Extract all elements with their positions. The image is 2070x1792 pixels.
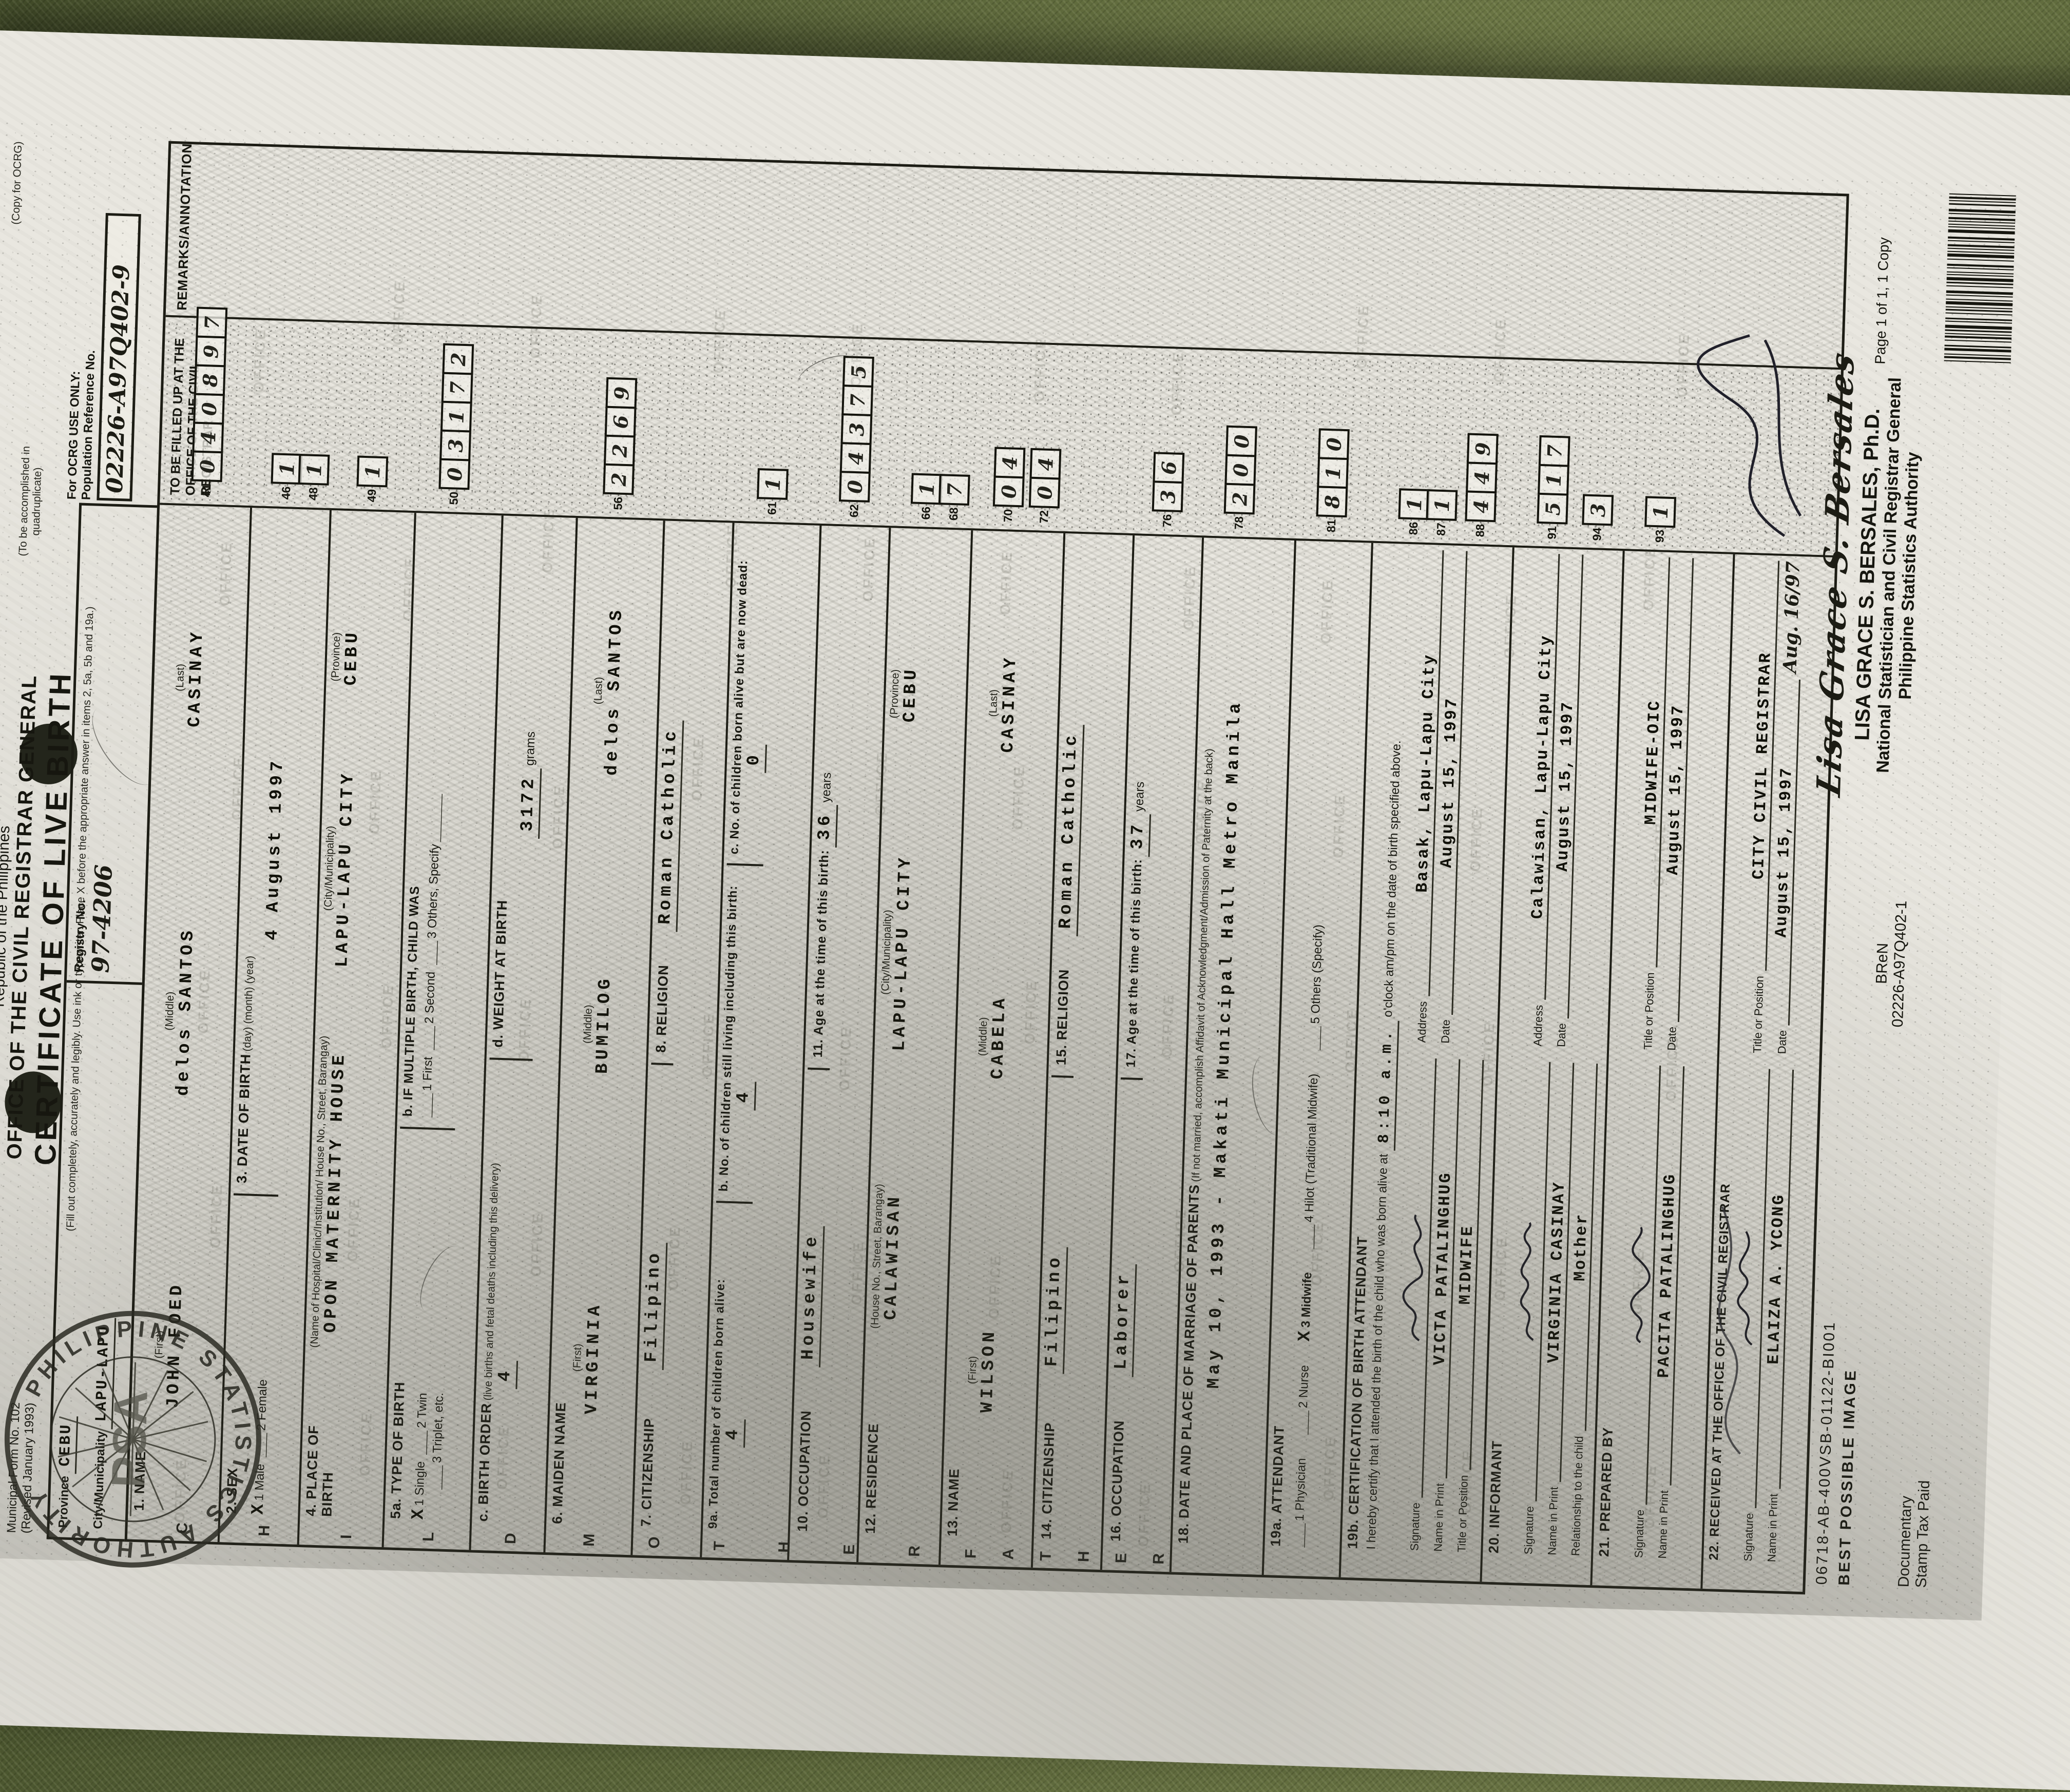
attendant-hilot: 4 Hilot (Traditional Midwife) xyxy=(1302,1073,1320,1223)
father-age-value: 37 xyxy=(1128,814,1152,857)
attendant-midwife: 3 Midwife xyxy=(1299,1272,1314,1328)
ocrg-box-88: 88449 xyxy=(1464,433,1498,537)
ocrg-box-cell: 1 xyxy=(1398,489,1430,521)
certification-time: 8:10 a.m. xyxy=(1375,1020,1400,1151)
ocrg-box-number: 56 xyxy=(611,497,625,510)
barcode-bar xyxy=(1949,213,2016,216)
ocrg-box-digit: 7 xyxy=(1543,444,1566,458)
ocrg-box-91: 91517 xyxy=(1536,435,1570,539)
ocrg-box-cell: 1 xyxy=(298,454,330,486)
ocrg-box-cell: 7 xyxy=(841,385,873,417)
ocrg-box-cell: 0 xyxy=(438,458,470,490)
mother-religion-value: Roman Catholic xyxy=(655,720,684,932)
ocrg-box-digit: 0 xyxy=(997,485,1021,499)
barcode-bar xyxy=(1945,324,2012,330)
informant-relationship-label: Relationship to the child xyxy=(1569,1436,1586,1556)
ocrg-box-number: 93 xyxy=(1653,529,1667,543)
ocrg-box-cell: 8 xyxy=(1316,486,1348,518)
mother-age-label: 11. Age at the time of this birth: xyxy=(811,850,832,1058)
section-letter-mother: E xyxy=(841,1544,859,1555)
ocrg-box-49: 491 xyxy=(356,456,388,503)
documentary-line-2: Stamp Tax Paid xyxy=(1913,1480,1934,1588)
barcode-bar xyxy=(1948,240,2015,243)
ocrg-box-48: 481 xyxy=(298,454,330,500)
ocrg-box-cell: 3 xyxy=(439,430,471,461)
ocrg-box-digit: 3 xyxy=(444,438,467,453)
ocrg-box-cell: 2 xyxy=(604,435,636,467)
section-letter-child: D xyxy=(502,1533,520,1545)
ocrg-box-cell: 7 xyxy=(938,474,970,506)
documentary-stamp-note: Documentary Stamp Tax Paid xyxy=(1895,1479,1934,1588)
ocrg-box-digit: 1 xyxy=(1430,498,1453,512)
ocrg-box-cell: 7 xyxy=(1539,435,1570,467)
ocrg-box-66: 661 xyxy=(910,473,943,520)
section-letter-father: R xyxy=(1151,1553,1168,1565)
weight-label: d. WEIGHT AT BIRTH xyxy=(490,899,510,1048)
ocrg-box-cell: 0 xyxy=(1225,426,1257,457)
section-letter-father: H xyxy=(1075,1551,1093,1563)
barcode-bar xyxy=(1947,277,2014,282)
ocrg-box-digit: 7 xyxy=(846,394,869,408)
ocrg-box-digit: 8 xyxy=(1320,495,1344,509)
ocrg-box-cell: 1 xyxy=(911,473,943,505)
section-letter-father: F xyxy=(962,1549,980,1558)
father-religion-value: Roman Catholic xyxy=(1056,724,1085,936)
ocrg-box-digit: 0 xyxy=(197,402,221,416)
barcode-bar xyxy=(1949,200,2016,203)
tob-second: 2 Second xyxy=(423,971,438,1024)
informant-signature-label: Signature xyxy=(1522,1506,1537,1555)
marriage-value: May 10, 1993 - Makati Municipal Hall Met… xyxy=(1200,544,1251,1545)
ocrg-box-digit: 3 xyxy=(845,422,868,437)
certification-text-1: I hereby certify that I attended the bir… xyxy=(1364,1153,1390,1550)
ocrg-box-cell: 4 xyxy=(1466,462,1498,494)
ocrg-box-cell: 1 xyxy=(1426,489,1458,521)
photocopied-certificate-paper: Municipal Form No. 102 (Revised January … xyxy=(0,30,2070,1792)
father-name-label: 13. NAME xyxy=(945,1468,962,1536)
barcode-bar xyxy=(1947,254,2014,259)
ocrg-box-number: 72 xyxy=(1037,510,1051,524)
ocrg-box-76: 7636 xyxy=(1152,452,1185,528)
mother-occupation-value: Housewife xyxy=(798,1226,825,1367)
ocrg-box-digit: 0 xyxy=(443,467,466,481)
barcode xyxy=(1944,192,2016,363)
ocrg-box-number: 48 xyxy=(306,487,320,500)
ocrg-box-number: 81 xyxy=(1324,519,1338,532)
ocrg-box-cell: 0 xyxy=(1029,477,1061,509)
attendant-signature xyxy=(1398,1210,1430,1345)
seal-center-text: PSA xyxy=(102,1390,158,1488)
ocrg-box-digit: 1 xyxy=(1402,497,1426,512)
ocrg-box-digit: 4 xyxy=(998,456,1022,470)
birth-order-label: c. BIRTH ORDER xyxy=(475,1402,494,1521)
father-age-label: 17. Age at the time of this birth: xyxy=(1124,858,1145,1067)
section-letter-father: E xyxy=(1113,1553,1130,1564)
mother-religion-label: 8. RELIGION xyxy=(653,965,671,1053)
children-born-alive-label: 9a. Total number of children born alive: xyxy=(706,1279,727,1529)
prepared-name-label: Name in Print xyxy=(1656,1490,1671,1559)
prepared-title-label: Title or Position xyxy=(1641,972,1657,1050)
received-script-date: Aug. 16/97 xyxy=(1779,561,1804,673)
dob-value: 4 August 1997 xyxy=(255,514,296,1185)
informant-label: 20. INFORMANT xyxy=(1486,1440,1505,1554)
barcode-bar xyxy=(1946,282,2013,285)
cert-title-label: Title or Position xyxy=(1455,1475,1471,1553)
barcode-bar xyxy=(1948,229,2015,235)
section-letter-child: I xyxy=(338,1534,355,1539)
ocrg-box-93: 931 xyxy=(1644,496,1676,543)
ocrg-box-digit: 3 xyxy=(1586,503,1609,517)
ocrg-box-68: 687 xyxy=(938,474,970,521)
registry-label: Registry No. xyxy=(72,899,88,972)
ocrg-box-cell: 1 xyxy=(1317,457,1349,489)
children-living-value: 4 xyxy=(734,1081,757,1110)
prepared-signature-label: Signature xyxy=(1632,1509,1647,1558)
ocrg-box-digit: 4 xyxy=(196,431,220,445)
residence-label: 12. RESIDENCE xyxy=(862,1411,883,1534)
barcode-bar xyxy=(1949,203,2016,207)
ocrg-box-digit: 4 xyxy=(1034,457,1058,471)
ocrg-box-41: 41040897 xyxy=(191,307,228,497)
tob-first: 1 First xyxy=(420,1056,435,1091)
children-dead-value: 0 xyxy=(744,744,767,773)
section-letter-mother: H xyxy=(776,1541,794,1553)
ocrg-box-78: 78200 xyxy=(1223,426,1257,530)
ocrg-box-digit: 2 xyxy=(608,444,631,458)
ocrg-box-cell: 0 xyxy=(839,471,871,503)
ocrg-box-number: 76 xyxy=(1160,514,1174,527)
attendant-physician: 1 Physician xyxy=(1293,1458,1309,1521)
ocrg-box-cell: 2 xyxy=(442,343,474,375)
registrar-general-block: Lisa Grace S. Bersales LISA GRACE S. BER… xyxy=(1809,342,1926,807)
barcode-bar xyxy=(1948,226,2015,229)
prepared-signature xyxy=(1625,1223,1655,1346)
ocrg-box-cell: 9 xyxy=(605,377,637,409)
ocrg-box-cell: 1 xyxy=(440,401,472,433)
received-name-label: Name in Print xyxy=(1765,1494,1780,1563)
ocrg-box-digit: 2 xyxy=(607,472,630,487)
ocrg-box-cell: 4 xyxy=(840,442,872,474)
ocrg-box-cell: 1 xyxy=(757,468,789,500)
ocrg-box-number: 94 xyxy=(1590,527,1604,541)
ocrg-box-cell: 9 xyxy=(195,336,227,368)
tob-mark: X xyxy=(409,1508,429,1520)
ocrg-box-digit: 6 xyxy=(609,415,632,429)
ocrg-box-number: 78 xyxy=(1232,516,1246,530)
ocrg-box-cell: 2 xyxy=(603,464,635,495)
father-citizenship-label: 14. CITIZENSHIP xyxy=(1039,1422,1058,1539)
barcode-bar xyxy=(1947,259,2014,262)
bren-number: 02226-A97Q402-1 xyxy=(1889,900,1911,1028)
dob-sublabel: (day) (month) (year) xyxy=(241,955,256,1051)
mother-age-value: 36 xyxy=(815,804,838,847)
section-letter-mother: O xyxy=(646,1536,664,1549)
attendant-others: 5 Others (Specify) xyxy=(1308,924,1325,1024)
informant-address-label: Address xyxy=(1531,1005,1546,1046)
ocrg-box-digit: 1 xyxy=(275,462,299,476)
father-citizenship-value: Filipino xyxy=(1042,1247,1068,1374)
ocrg-box-number: 66 xyxy=(918,506,933,519)
barcode-bar xyxy=(1949,194,2016,197)
quadruplicate-note: (To be accomplished in quadruplicate) xyxy=(16,434,45,568)
ocrg-box-digit: 2 xyxy=(1228,492,1252,506)
ocrg-box-cell: 1 xyxy=(1644,496,1676,528)
received-date-label: Date xyxy=(1775,1030,1789,1054)
ocrg-box-digit: 0 xyxy=(1033,486,1057,500)
informant-date-label: Date xyxy=(1555,1023,1568,1047)
ocrg-box-number: 86 xyxy=(1406,522,1421,535)
barcode-bar xyxy=(1948,221,2015,224)
weight-value: 3172 xyxy=(517,768,542,839)
psa-seal: PHILIPPINE STATISTICS AUTHORITY PSA xyxy=(0,1296,276,1582)
barcode-bar xyxy=(1946,309,2012,313)
ocrg-box-cell: 4 xyxy=(192,422,224,454)
ocrg-box-digit: 0 xyxy=(843,479,867,494)
ocrg-box-cell: 0 xyxy=(193,393,225,425)
ocrg-box-cell: 3 xyxy=(1152,481,1184,513)
ocrg-box-cell: 0 xyxy=(993,476,1025,508)
ocrg-box-digit: 9 xyxy=(609,386,633,400)
ocrg-box-digit: 9 xyxy=(1471,442,1494,456)
ocrg-box-cell: 0 xyxy=(1224,454,1256,486)
ocrg-box-digit: 0 xyxy=(196,459,219,474)
pob-label: 4. PLACE OF BIRTH xyxy=(303,1393,339,1517)
ocrg-box-cell: 5 xyxy=(1537,493,1568,525)
cert-signature-label: Signature xyxy=(1408,1502,1423,1551)
father-occupation-label: 16. OCCUPATION xyxy=(1108,1420,1127,1541)
population-reference-value: 02226-A97Q402-9 xyxy=(102,264,135,493)
ocrg-box-cell: 1 xyxy=(356,456,388,488)
father-age-years: years xyxy=(1132,781,1147,812)
ocrg-box-cell: 0 xyxy=(1318,429,1350,460)
father-religion-label: 15. RELIGION xyxy=(1053,969,1072,1065)
population-reference-frame: 02226-A97Q402-9 xyxy=(97,213,141,502)
ocrg-box-digit: 5 xyxy=(847,365,870,379)
ocrg-box-61: 611 xyxy=(756,468,789,515)
ocrg-box-number: 88 xyxy=(1473,524,1487,537)
ocrg-box-digit: 9 xyxy=(199,344,223,359)
ocrg-box-digit: 2 xyxy=(446,352,470,367)
barcode-bar xyxy=(1946,301,2012,306)
ocrg-box-digit: 4 xyxy=(1469,499,1492,514)
form-table: 1. NAME (First) JOHN FOED (Middle) delos… xyxy=(125,141,1849,1595)
prepared-date-label: Date xyxy=(1665,1027,1679,1051)
bren-block: BReN 02226-A97Q402-1 xyxy=(1872,900,1911,1028)
form-fields-zone: 1. NAME (First) JOHN FOED (Middle) delos… xyxy=(127,503,1835,1592)
barcode-bar xyxy=(1944,356,2011,360)
ocrg-box-digit: 8 xyxy=(198,373,222,388)
ocrg-box-digit: 1 xyxy=(1321,466,1345,480)
barcode-bar xyxy=(1944,348,2011,353)
tob-single: 1 Single xyxy=(412,1461,428,1506)
serial-number: 06718-AB-400VSB-01122-BI001 xyxy=(1813,1321,1839,1585)
tob-others: 3 Others, Specify xyxy=(425,844,442,939)
section-letter-mother: M xyxy=(581,1533,599,1547)
ocrg-box-digit: 1 xyxy=(1649,505,1672,519)
ocrg-box-cell: 3 xyxy=(1582,494,1614,526)
ocrg-box-94: 943 xyxy=(1581,494,1614,541)
ocrg-box-cell: 4 xyxy=(994,447,1026,479)
ocrg-use-only-box: For OCRG USE ONLY: Population Reference … xyxy=(65,212,161,502)
barcode-bar xyxy=(1946,294,2013,297)
best-possible-image-stamp: BEST POSSIBLE IMAGE xyxy=(1836,1321,1862,1586)
registry-no-field: Registry No. 97-4206 xyxy=(67,665,152,985)
handwritten-flourish xyxy=(1681,327,1822,547)
ocrg-box-digit: 1 xyxy=(445,410,468,424)
handwritten-scrawl xyxy=(1694,1201,1774,1460)
ocrg-box-digit: 4 xyxy=(844,451,868,466)
ocrg-box-cell: 5 xyxy=(842,356,874,388)
ocrg-box-digit: 5 xyxy=(1541,502,1564,516)
cert-name-label: Name in Print xyxy=(1431,1483,1447,1552)
tob-label: 5a. TYPE OF BIRTH xyxy=(388,1381,407,1519)
ocrg-box-cell: 1 xyxy=(1538,464,1569,496)
ocrg-box-digit: 1 xyxy=(1542,473,1565,487)
ocrg-box-cell: 2 xyxy=(1224,483,1256,515)
serial-line: 06718-AB-400VSB-01122-BI001 BEST POSSIBL… xyxy=(1813,1321,1862,1586)
ocrg-box-86: 861 xyxy=(1397,489,1430,535)
section-letter-child: L xyxy=(420,1532,438,1541)
ocrg-box-cell: 6 xyxy=(1153,452,1184,484)
barcode-bar xyxy=(1945,336,2011,340)
barcode-bar xyxy=(1947,248,2014,251)
ocrg-box-digit: 1 xyxy=(915,482,938,496)
barcode-bar xyxy=(1946,285,2013,288)
ocrg-box-87: 871 xyxy=(1425,489,1458,536)
dob-label: 3. DATE OF BIRTH xyxy=(234,1053,254,1183)
barcode-bar xyxy=(1944,360,2011,363)
barcode-bar xyxy=(1945,329,2011,333)
ocrg-box-digit: 0 xyxy=(1230,434,1253,449)
tob-b-label: b. IF MULTIPLE BIRTH, CHILD WAS xyxy=(400,885,422,1117)
ocrg-box-cell: 6 xyxy=(605,406,637,438)
ocrg-box-number: 68 xyxy=(946,507,961,521)
ocrg-box-digit: 1 xyxy=(761,477,784,491)
attendant-nurse: 2 Nurse xyxy=(1296,1365,1312,1409)
ocrg-box-number: 62 xyxy=(847,504,861,517)
ocrg-box-digit: 7 xyxy=(943,483,966,497)
cert-address-label: Address xyxy=(1415,1001,1430,1043)
ocrg-box-cell: 4 xyxy=(1030,448,1062,480)
ocrg-box-number: 91 xyxy=(1545,526,1559,539)
received-signature-label: Signature xyxy=(1741,1513,1756,1562)
ocrg-box-digit: 1 xyxy=(360,465,384,479)
tob-triplet: 3 Triplet, etc. xyxy=(430,1392,446,1463)
mother-occupation-label: 10. OCCUPATION xyxy=(795,1410,814,1532)
barcode-bar xyxy=(1947,267,2014,270)
ocrg-box-70: 7004 xyxy=(992,447,1026,523)
maiden-name-label: 6. MAIDEN NAME xyxy=(549,1402,568,1524)
section-letter-father: A xyxy=(1000,1548,1018,1560)
ocrg-box-cell: 7 xyxy=(442,372,473,404)
ocrg-box-digit: 4 xyxy=(1470,471,1493,485)
mother-citizenship-value: Filipino xyxy=(642,1242,668,1370)
barcode-bar xyxy=(1945,320,2012,323)
certification-text-2: o'clock am/pm on the date of birth speci… xyxy=(1381,740,1404,1017)
birth-certificate-document: Municipal Form No. 102 (Revised January … xyxy=(0,120,2027,1621)
received-title-label: Title or Position xyxy=(1751,976,1767,1054)
ocrg-box-digit: 7 xyxy=(200,316,223,330)
ocrg-box-81: 81810 xyxy=(1316,429,1350,533)
barcode-bar xyxy=(1947,274,2014,277)
ocrg-box-cell: 3 xyxy=(840,414,872,446)
grams-label: grams xyxy=(523,731,538,766)
attendant-label: 19a. ATTENDANT xyxy=(1268,1425,1287,1547)
ocrg-box-cell: 9 xyxy=(1467,433,1499,465)
birth-order-value: 4 xyxy=(495,1360,518,1389)
registry-value: 97-4206 xyxy=(86,864,118,973)
ocrg-box-number: 87 xyxy=(1434,523,1448,536)
ocrg-box-number: 50 xyxy=(447,491,461,505)
ocrg-box-digit: 3 xyxy=(1156,490,1180,504)
ocrg-box-number: 49 xyxy=(365,489,379,502)
barcode-bar xyxy=(1945,340,2011,343)
ocrg-box-62: 6204375 xyxy=(838,356,874,518)
ocrg-box-number: 70 xyxy=(1001,509,1015,522)
ocrg-box-cell: 0 xyxy=(191,451,223,483)
barcode-bar xyxy=(1946,313,2012,316)
informant-name-label: Name in Print xyxy=(1545,1487,1561,1555)
prepared-label: 21. PREPARED BY xyxy=(1596,1427,1616,1557)
children-born-alive-value: 4 xyxy=(723,1418,746,1448)
section-letter-mother: T xyxy=(711,1541,729,1551)
ocrg-box-number: 46 xyxy=(279,486,293,499)
section-letter-father: T xyxy=(1038,1551,1056,1561)
ocrg-box-number: 61 xyxy=(765,502,779,515)
ocrg-box-number: 41 xyxy=(199,484,214,497)
ocrg-box-digit: 1 xyxy=(302,463,325,477)
ocrg-box-digit: 7 xyxy=(446,381,469,395)
ocrg-box-50: 5003172 xyxy=(438,343,474,505)
ocrg-box-digit: 0 xyxy=(1322,437,1346,452)
attendant-mark: X xyxy=(1295,1329,1315,1342)
tob-twin: 2 Twin xyxy=(415,1393,430,1429)
copy-for-ocrg: (Copy for OCRG) xyxy=(8,141,25,285)
ocrg-box-cell: 4 xyxy=(1465,491,1497,523)
cert-date-label: Date xyxy=(1439,1019,1452,1044)
father-occupation-value: Laborer xyxy=(1111,1264,1137,1377)
remarks-header: REMARKS/ANNOTATION xyxy=(166,146,203,316)
ocrg-box-72: 7204 xyxy=(1028,448,1062,524)
ocrg-box-cell: 8 xyxy=(194,364,226,396)
informant-signature xyxy=(1515,1219,1544,1343)
mother-citizenship-label: 7. CITIZENSHIP xyxy=(638,1418,657,1527)
mother-age-years: years xyxy=(819,772,834,803)
ocrg-box-digit: 6 xyxy=(1157,461,1180,475)
section-letter-mother: R xyxy=(906,1545,924,1557)
ocrg-box-56: 562269 xyxy=(602,377,637,510)
ocrg-box-digit: 0 xyxy=(1229,463,1252,477)
